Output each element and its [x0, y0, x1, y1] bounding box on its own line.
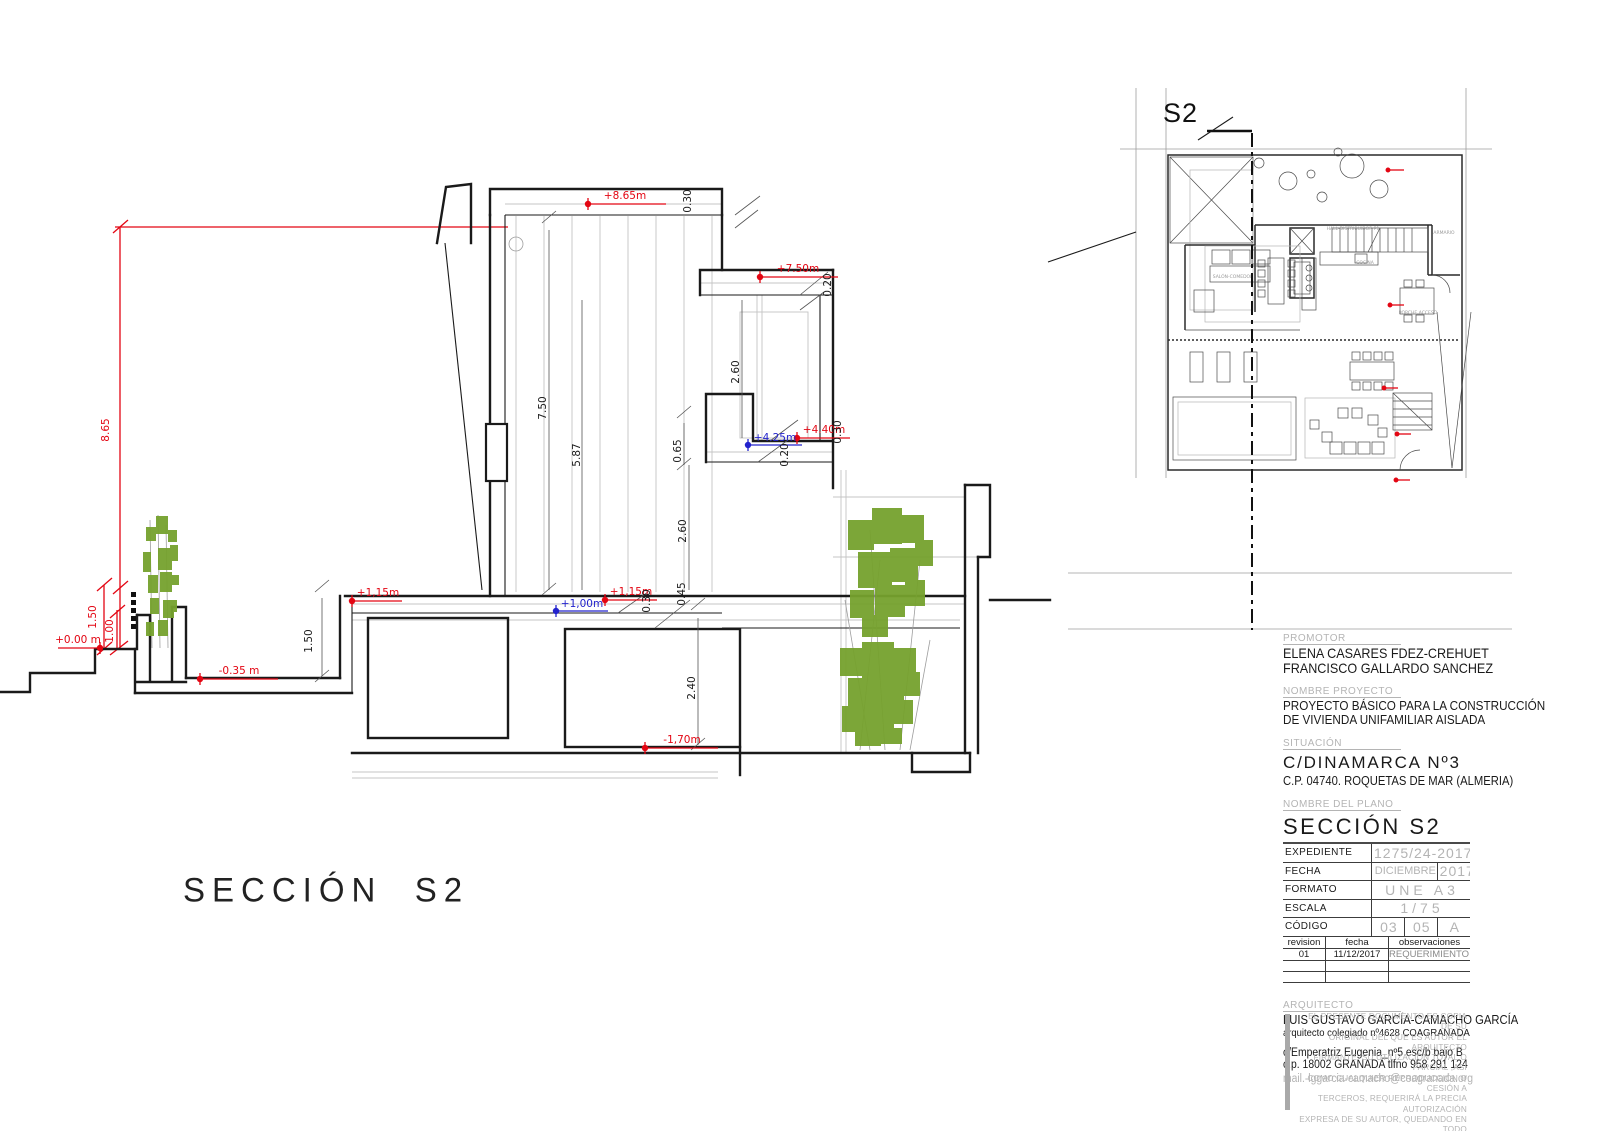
level-label: -1,70m	[663, 734, 700, 746]
situacion-address: C/DINAMARCA Nº3	[1283, 753, 1470, 773]
vegetation-left	[143, 515, 179, 648]
copyright-bar	[1285, 1014, 1290, 1110]
field-value: 1275/24-2017	[1372, 844, 1471, 862]
project-line-1: PROYECTO BÁSICO PARA LA CONSTRUCCIÓN	[1283, 699, 1451, 713]
field-value: DICIEMBRE	[1372, 862, 1438, 881]
dim-label: 0.30	[682, 189, 694, 212]
dim-label: 7.50	[537, 396, 549, 419]
red-reference-dimensions	[97, 220, 508, 655]
vegetation-right	[840, 508, 933, 750]
dimension-lines	[315, 196, 828, 750]
section-drawing: +8.65m +7.50m +4.40m +4.25m +1,15m +1,00…	[0, 184, 1050, 778]
level-marker-minus170: -1,70m	[642, 734, 718, 754]
field-label: EXPEDIENTE	[1283, 844, 1372, 862]
room-label: ARMARIO	[1433, 230, 1455, 236]
room-label: COCINA	[1356, 260, 1375, 266]
revision-data-row: 01 11/12/2017 REQUERIMIENTO MUNICIPAL 14…	[1283, 948, 1470, 960]
level-label: +7.50m	[777, 263, 819, 275]
level-label: +1,15m	[357, 587, 399, 599]
revision-table: revision fecha observaciones 01 11/12/20…	[1283, 937, 1470, 983]
promotor-name-1: ELENA CASARES FDEZ-CREHUET	[1283, 646, 1451, 661]
field-row-escala: ESCALA 1/75	[1283, 899, 1470, 918]
field-label: FECHA	[1283, 862, 1372, 881]
dim-label: 0.65	[672, 439, 684, 462]
level-marker-865: +8.65m	[585, 190, 666, 210]
copyright-line: ORIGINAL DEL QUE ES AUTOR EL ARQUITECTO	[1297, 1033, 1467, 1054]
dim-label: 0.45	[676, 582, 688, 605]
level-marker-425: +4.25m	[745, 432, 802, 451]
dimension-labels: 0.30 0.20 7.50 5.87 2.60 0.65 0.20 0.30 …	[87, 189, 844, 699]
promotor-label: PROMOTOR	[1283, 633, 1401, 645]
dim-label: 8.65	[100, 418, 112, 441]
field-row-fecha: FECHA DICIEMBRE 2017	[1283, 862, 1470, 881]
field-value: 1/75	[1372, 899, 1471, 918]
plan-pool	[1173, 397, 1296, 460]
room-label: SALÓN-COMEDOR	[1213, 273, 1253, 280]
field-value: UNE A3	[1372, 881, 1471, 900]
level-label: -0.35 m	[219, 665, 260, 677]
dim-label: 1.50	[303, 629, 315, 652]
field-row-expediente: EXPEDIENTE 1275/24-2017	[1283, 844, 1470, 862]
dim-label: 1.00	[104, 619, 116, 642]
section-cut-line: S2	[1163, 98, 1252, 630]
dim-label: 0.20	[822, 273, 834, 296]
level-label: +8.65m	[604, 190, 646, 202]
revision-empty-row	[1283, 971, 1470, 982]
dim-label: 2.60	[677, 519, 689, 542]
copyright-line: FIRMANTE. SU UTILIZACIÓN TOTAL O PARCIAL…	[1297, 1053, 1467, 1074]
plan-level-markers	[1382, 168, 1411, 482]
plan-stairs-doors	[1393, 275, 1471, 470]
revision-cell: 01	[1283, 948, 1326, 960]
level-marker-minus035: -0.35 m	[197, 665, 278, 685]
copyright-note: EL PRESENTE DOCUMENTO ES COPIA DE SU ORI…	[1285, 1012, 1467, 1131]
dim-label: 0.20	[779, 443, 791, 466]
dim-label: 2.40	[686, 676, 698, 699]
situacion-label: SITUACIÓN	[1283, 738, 1401, 750]
arquitecto-label: ARQUITECTO	[1283, 1000, 1401, 1012]
field-row-formato: FORMATO UNE A3	[1283, 881, 1470, 900]
plano-label: NOMBRE DEL PLANO	[1283, 799, 1401, 811]
dim-label: 5.87	[571, 443, 583, 466]
dim-label: 2.60	[730, 360, 742, 383]
section-title: SECCIÓN S2	[183, 870, 469, 910]
section-cut-label: S2	[1163, 98, 1198, 128]
plan-room-labels: HALL-DISTRIBUIDOR P1 ARMARIO COCINA SALÓ…	[1213, 226, 1455, 316]
revision-empty-row	[1283, 960, 1470, 971]
plan-crossed-area	[1170, 157, 1253, 310]
revision-header-row: revision fecha observaciones	[1283, 937, 1470, 949]
revision-header: fecha	[1326, 937, 1389, 949]
revision-cell: REQUERIMIENTO MUNICIPAL 14/11/2017	[1389, 948, 1471, 960]
revision-header: revision	[1283, 937, 1326, 949]
copyright-line: COMO CUALQUIER REPRODUCCIÓN O CESIÓN A	[1297, 1074, 1467, 1095]
drawing-sheet: +8.65m +7.50m +4.40m +4.25m +1,15m +1,00…	[0, 0, 1600, 1131]
plano-name: SECCIÓN S2	[1283, 814, 1470, 844]
field-row-codigo: CÓDIGO 03 05 A	[1283, 918, 1470, 937]
promotor-name-2: FRANCISCO GALLARDO SANCHEZ	[1283, 661, 1451, 676]
field-label: CÓDIGO	[1283, 918, 1372, 937]
level-label: +4.25m	[754, 432, 796, 444]
fields-table: EXPEDIENTE 1275/24-2017 FECHA DICIEMBRE …	[1283, 844, 1470, 937]
field-value: 05	[1404, 918, 1437, 937]
revision-cell: 11/12/2017	[1326, 948, 1389, 960]
key-plan: HALL-DISTRIBUIDOR P1 ARMARIO COCINA SALÓ…	[1048, 88, 1512, 630]
dim-label: 1.50	[87, 605, 99, 628]
project-label: NOMBRE PROYECTO	[1283, 686, 1401, 698]
level-label: +0.00 m	[55, 634, 101, 646]
field-value: 2017	[1437, 862, 1470, 881]
level-label: +1,00m	[561, 598, 603, 610]
project-line-2: DE VIVIENDA UNIFAMILIAR AISLADA	[1283, 713, 1451, 727]
dim-label: 0.30	[832, 420, 844, 443]
copyright-line: EL PRESENTE DOCUMENTO ES COPIA DE SU	[1297, 1012, 1467, 1033]
field-label: FORMATO	[1283, 881, 1372, 900]
field-value: 03	[1372, 918, 1405, 937]
copyright-line: EXPRESA DE SU AUTOR, QUEDANDO EN TODO	[1297, 1115, 1467, 1131]
situacion-city: C.P. 04740. ROQUETAS DE MAR (ALMERIA)	[1283, 774, 1451, 788]
field-label: ESCALA	[1283, 899, 1372, 918]
field-value: A	[1437, 918, 1470, 937]
room-label: HALL-DISTRIBUIDOR P1	[1327, 226, 1380, 232]
plan-trees	[1254, 148, 1388, 202]
revision-header: observaciones	[1389, 937, 1471, 949]
copyright-line: TERCEROS, REQUERIRÁ LA PRECIA AUTORIZACI…	[1297, 1094, 1467, 1115]
level-marker-100: +1,00m	[553, 598, 608, 617]
room-label: PORCHE ACCESO	[1399, 310, 1438, 316]
dim-label: 0.30	[641, 589, 653, 612]
